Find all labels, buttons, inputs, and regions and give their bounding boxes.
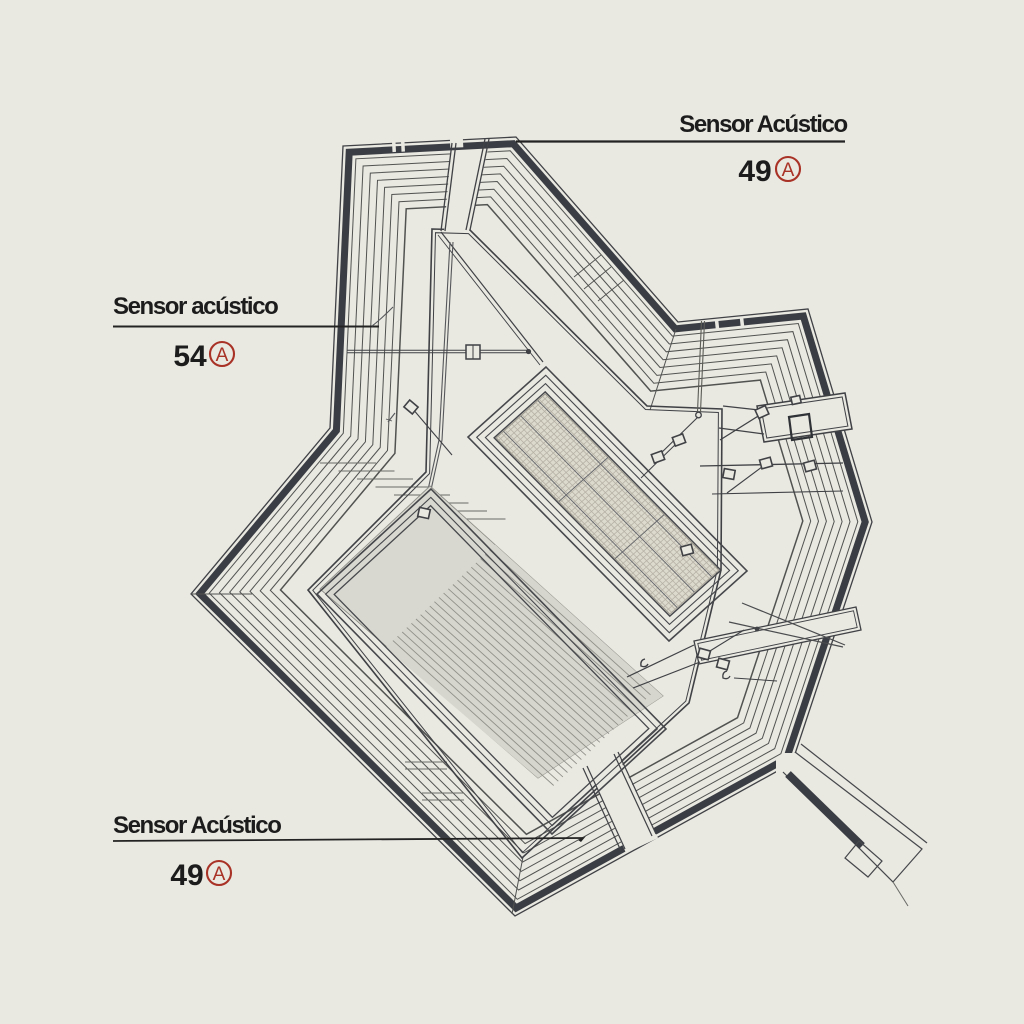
svg-text:49: 49 [738, 155, 771, 188]
svg-text:49: 49 [170, 859, 203, 892]
svg-text:A: A [216, 345, 229, 366]
svg-text:54: 54 [173, 340, 207, 373]
svg-text:Sensor Acústico: Sensor Acústico [679, 111, 847, 138]
svg-text:A: A [782, 160, 795, 181]
svg-text:Sensor Acústico: Sensor Acústico [113, 812, 281, 839]
svg-text:A: A [213, 864, 226, 885]
svg-text:Sensor acústico: Sensor acústico [113, 293, 278, 320]
